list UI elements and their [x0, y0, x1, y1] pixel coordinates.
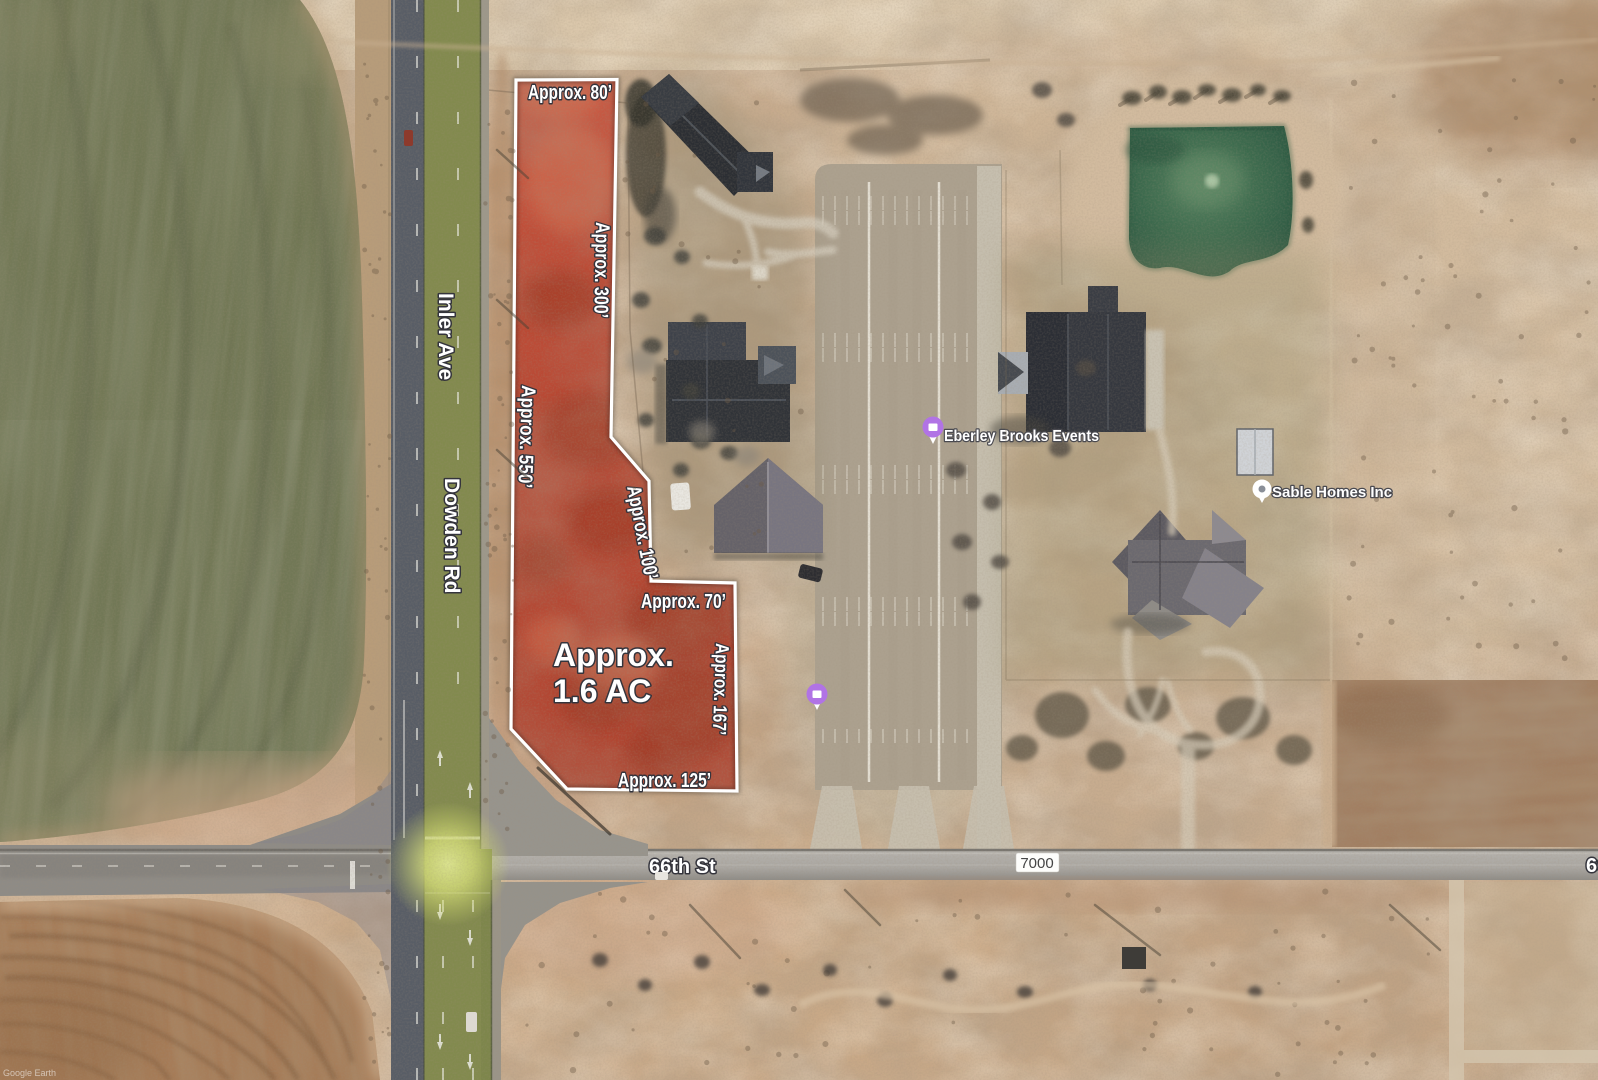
svg-text:Approx.: Approx.	[553, 637, 674, 673]
svg-text:7000: 7000	[1020, 855, 1053, 872]
svg-text:Approx. 125’: Approx. 125’	[618, 770, 711, 792]
svg-text:Sable Homes Inc: Sable Homes Inc	[1272, 484, 1392, 501]
svg-text:1.6 AC: 1.6 AC	[553, 673, 651, 709]
svg-text:Inler Ave: Inler Ave	[434, 293, 457, 380]
svg-text:Approx. 167’: Approx. 167’	[708, 643, 732, 736]
svg-text:Approx. 80’: Approx. 80’	[528, 82, 612, 104]
svg-text:Eberley Brooks Events: Eberley Brooks Events	[944, 428, 1099, 445]
svg-text:Dowden Rd: Dowden Rd	[440, 478, 463, 594]
svg-text:Approx. 70’: Approx. 70’	[641, 591, 726, 613]
svg-text:Approx. 550’: Approx. 550’	[513, 385, 539, 489]
svg-text:Google Earth: Google Earth	[3, 1068, 56, 1078]
svg-text:Approx. 300’: Approx. 300’	[589, 222, 613, 318]
svg-text:66: 66	[1586, 855, 1598, 877]
